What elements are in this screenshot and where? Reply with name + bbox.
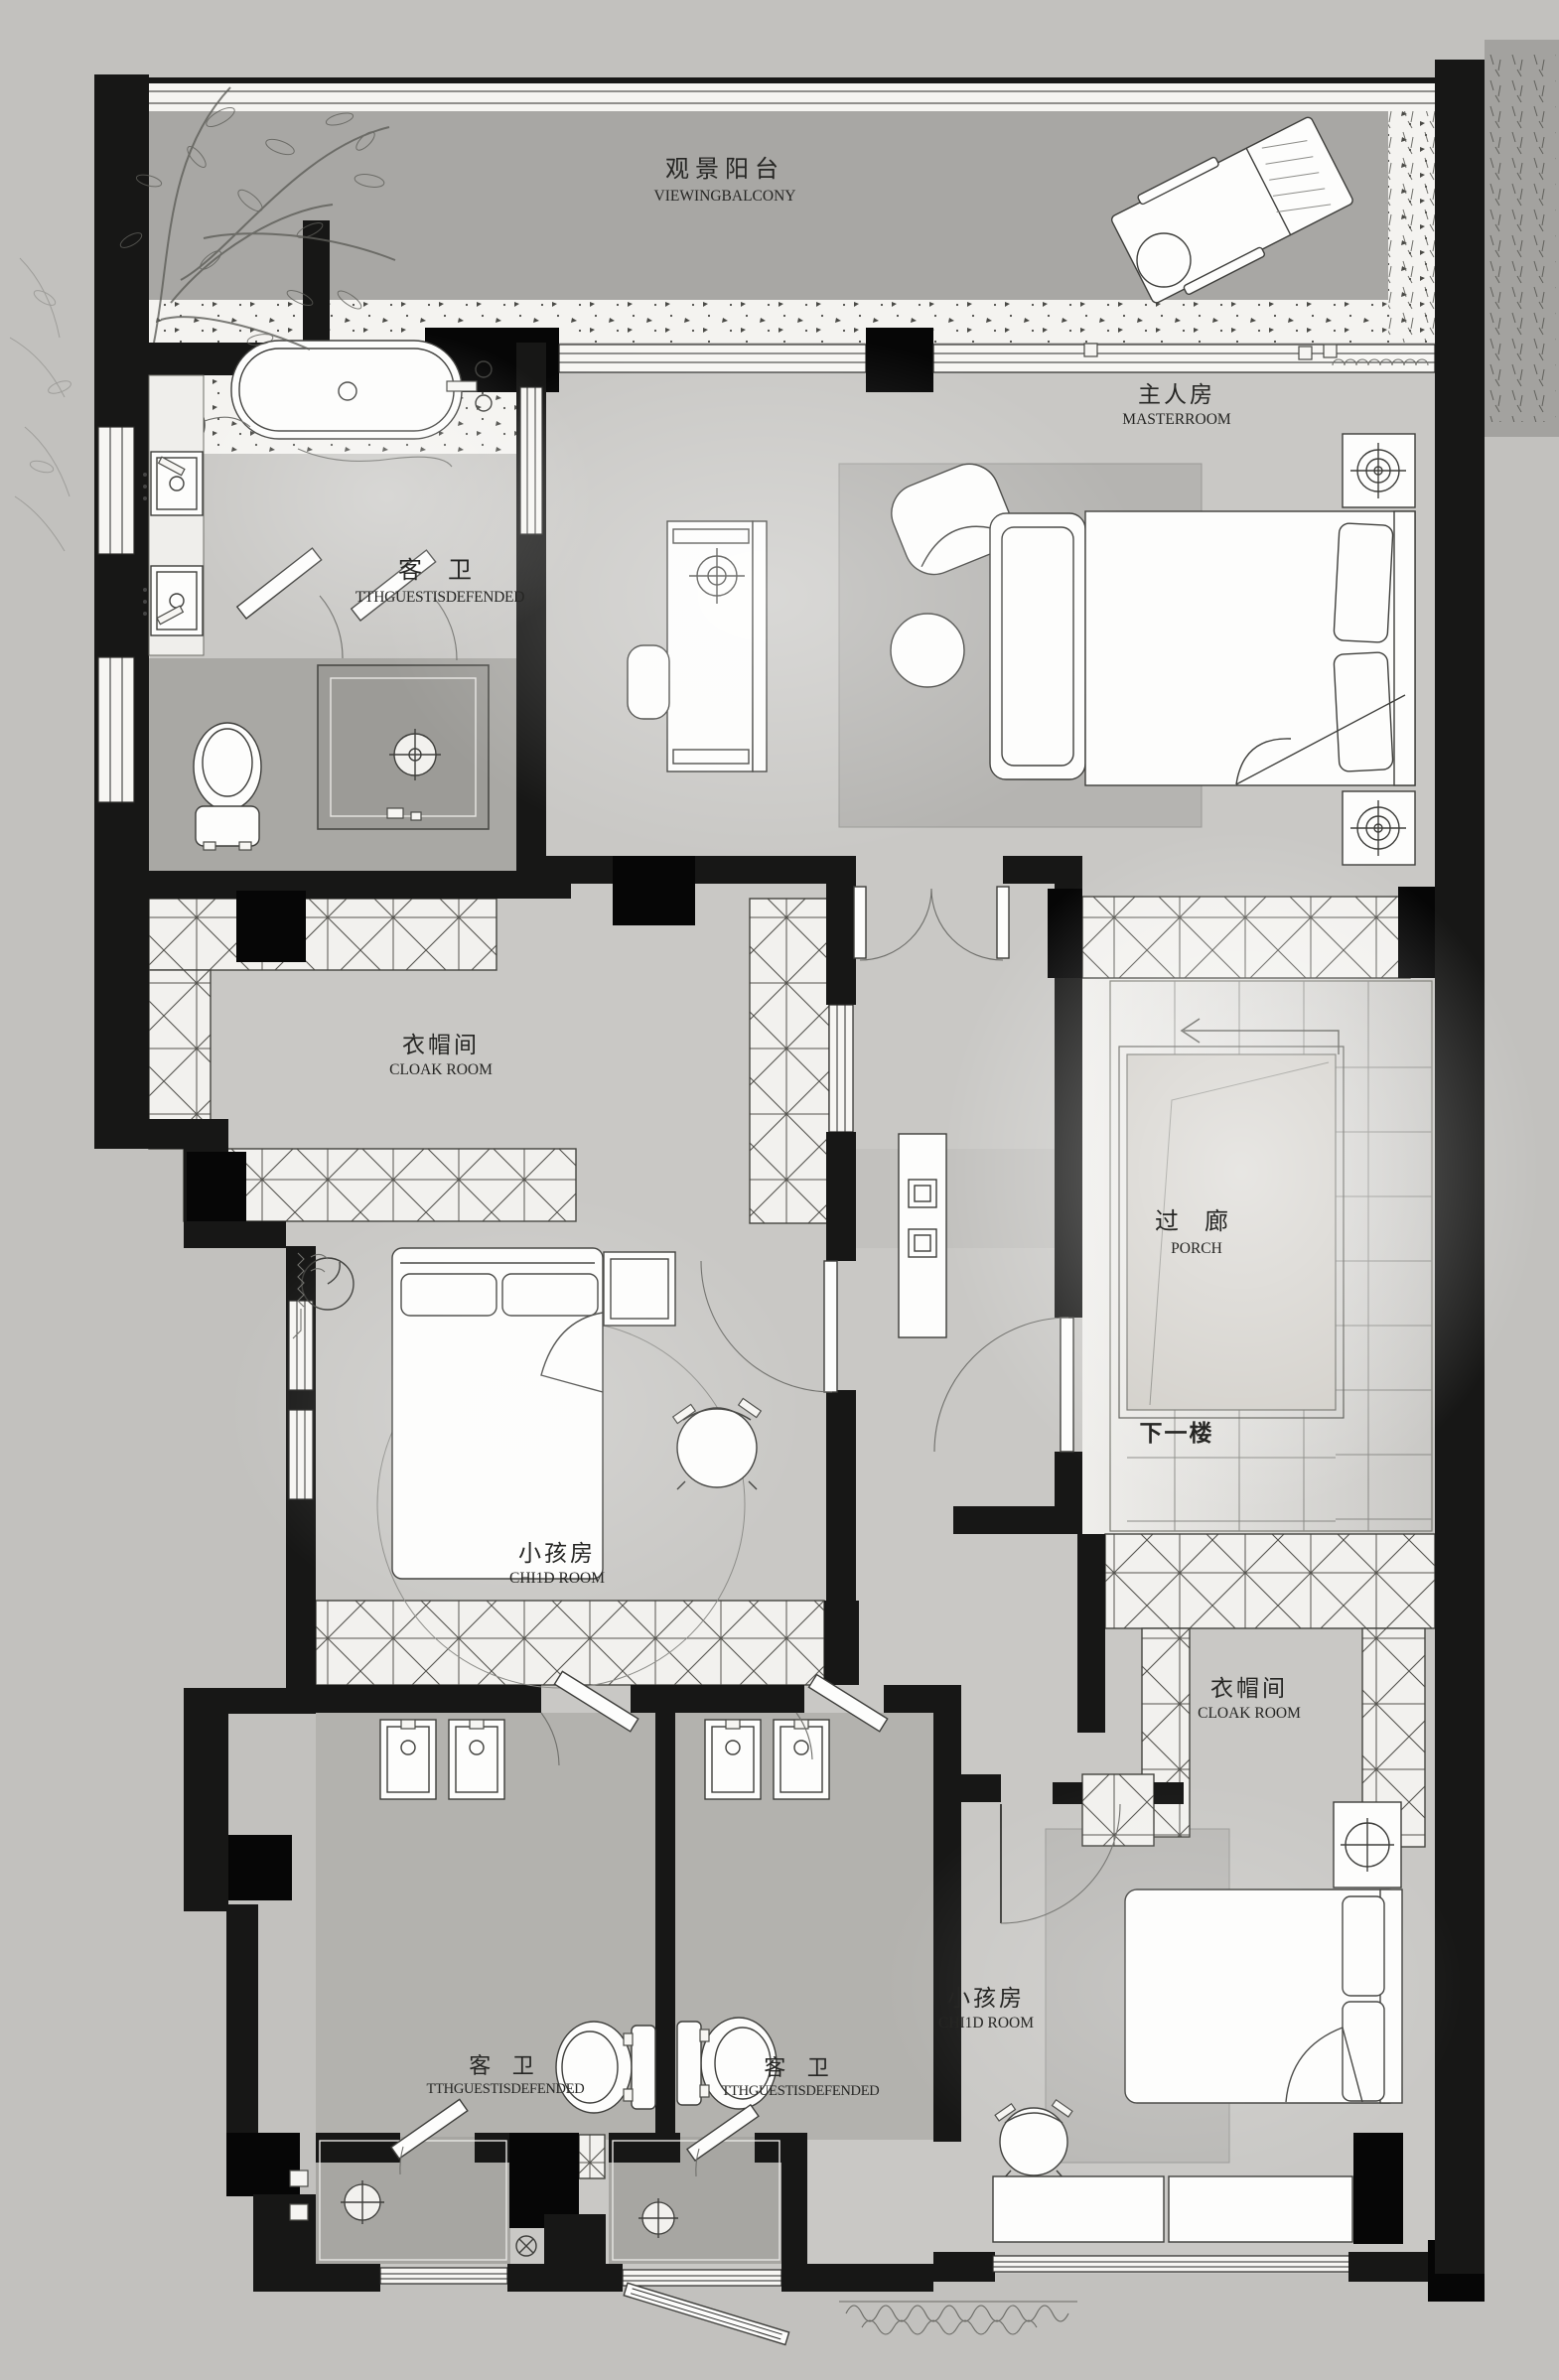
desk — [667, 521, 767, 771]
nightstand — [1334, 1802, 1401, 1888]
toilet — [556, 2022, 655, 2113]
master-bed — [1085, 511, 1415, 785]
ottoman — [891, 614, 964, 687]
porch-landing — [1119, 1047, 1344, 1418]
toilet — [194, 723, 261, 850]
nightstand — [1343, 791, 1415, 865]
right-outside-foliage — [1487, 55, 1556, 422]
hall-console — [899, 1134, 946, 1337]
floor-plan-drawing — [0, 0, 1559, 2380]
sink — [449, 1720, 504, 1799]
desk-chair — [628, 645, 669, 719]
bed-bench — [990, 513, 1085, 779]
child-bed — [392, 1248, 603, 1579]
window-bench — [993, 2176, 1352, 2242]
side-table — [1137, 233, 1191, 287]
sink — [705, 1720, 761, 1799]
nightstand — [1343, 434, 1415, 507]
sink — [143, 452, 203, 515]
sink — [143, 566, 203, 635]
sink — [774, 1720, 829, 1799]
sink — [380, 1720, 436, 1799]
floor-plan: 观景阳台 VIEWINGBALCONY 主人房 MASTERROOM 客 卫 T… — [0, 0, 1559, 2380]
child-bed — [1125, 1890, 1402, 2103]
shower-enclosure — [318, 665, 489, 829]
child-desk — [604, 1252, 675, 1326]
toilet — [677, 2018, 777, 2109]
